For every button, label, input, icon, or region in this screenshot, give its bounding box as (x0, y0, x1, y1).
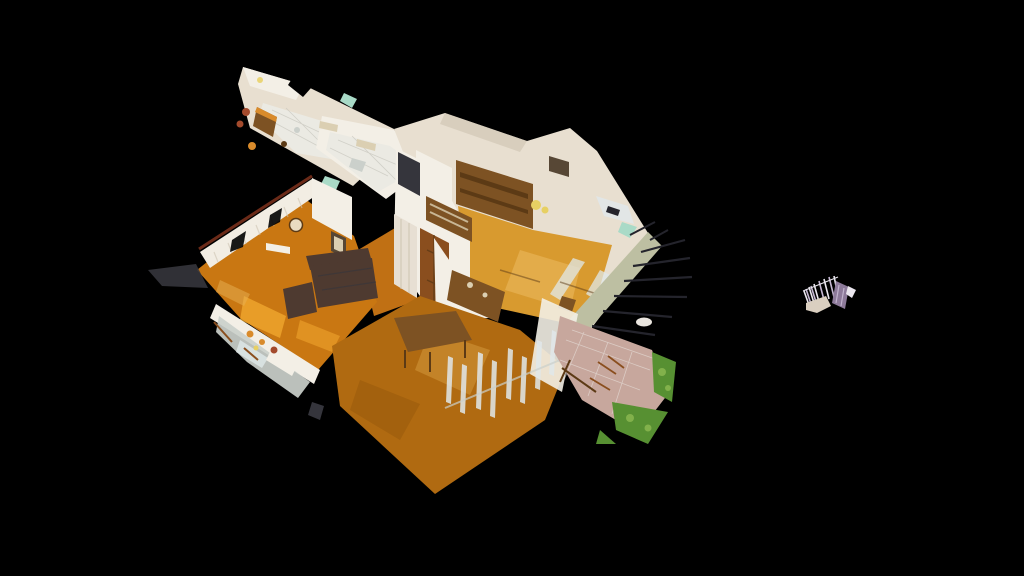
kitchen-clutter-2 (237, 121, 244, 128)
table-item-1 (247, 331, 254, 338)
table-item-4 (254, 346, 259, 351)
wall-clock (290, 219, 303, 232)
desk-item-2 (483, 293, 488, 298)
kitchen-clutter-4 (281, 141, 287, 147)
white-double-door (394, 214, 417, 298)
greenery-highlight-4 (645, 425, 652, 432)
greenery-highlight-2 (665, 385, 671, 391)
kitchen-appliance (294, 127, 300, 133)
desk-item-1 (467, 282, 473, 288)
viewer-stage (0, 0, 1024, 576)
table-item-2 (259, 339, 265, 345)
greenery-highlight-1 (658, 368, 666, 376)
greenery-highlight-3 (626, 414, 634, 422)
attic-pendant-lamp-2 (542, 207, 549, 214)
kitchen-clutter-1 (242, 108, 250, 116)
kitchen-clutter-3 (248, 142, 256, 150)
dollhouse-3d-viewport[interactable] (0, 0, 1024, 576)
terrace-round-table (636, 318, 652, 327)
kitchen-lamp-glow (257, 77, 263, 83)
attic-pendant-lamp (531, 200, 541, 210)
table-item-3 (271, 347, 278, 354)
